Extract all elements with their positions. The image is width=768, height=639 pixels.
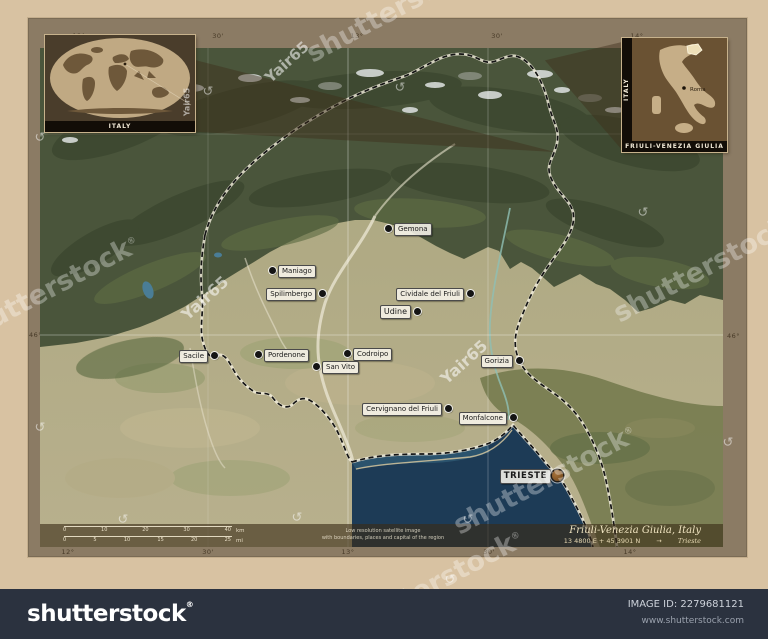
- place-dot-icon: [211, 352, 218, 359]
- italy-locator-inset: Roma ITALY FRIULI-VENEZIA GIULIA: [622, 38, 727, 152]
- graticule-label-bottom-0: 12°: [61, 548, 74, 556]
- place-label: Cervignano del Friuli: [362, 403, 442, 416]
- info-strip: 010203040 km 0510152025 mi Low resolutio…: [40, 524, 723, 547]
- image-id: IMAGE ID: 2279681121: [628, 599, 744, 610]
- scale-tick: 30: [183, 528, 189, 533]
- world-locator-inset: ITALY: [45, 35, 195, 132]
- scale-tick: 20: [142, 528, 148, 533]
- arrow-icon: →: [656, 537, 661, 545]
- world-map-art: [45, 35, 195, 121]
- scale-tick: 10: [101, 528, 107, 533]
- place-dot-icon: [344, 350, 351, 357]
- place-dot-icon: [269, 267, 276, 274]
- map-title-block: Friuli-Venezia Giulia, Italy 13 4800 E +…: [564, 525, 701, 546]
- scale-km-unit: km: [236, 528, 245, 534]
- region-meta: 13 4800 E + 45 3901 N → Trieste: [564, 537, 701, 546]
- place-label: San Vito: [322, 361, 359, 374]
- graticule-label-right-0: 46°: [727, 332, 740, 340]
- italy-inset-caption: FRIULI-VENEZIA GIULIA: [622, 141, 727, 152]
- scale-tick: 20: [191, 538, 197, 543]
- website-url: www.shutterstock.com: [642, 616, 744, 626]
- scale-mi-unit: mi: [236, 538, 243, 544]
- graticule-label-top-1: 30': [212, 32, 224, 40]
- scale-mi-ruler: 0510152025: [64, 536, 232, 543]
- place-dot-icon: [385, 225, 392, 232]
- graticule-label-bottom-4: 14°: [623, 548, 636, 556]
- graticule-label-top-3: 30': [491, 32, 503, 40]
- place-dot-icon: [319, 290, 326, 297]
- place-label: Cividale del Friuli: [396, 288, 464, 301]
- place-dot-icon: [552, 470, 563, 481]
- capital-name: Trieste: [678, 537, 701, 545]
- region-coordinates: 13 4800 E + 45 3901 N: [564, 537, 640, 545]
- scale-tick: 0: [63, 528, 66, 533]
- place-dot-icon: [516, 357, 523, 364]
- place-label: Sacile: [179, 350, 208, 363]
- place-dot-icon: [414, 308, 421, 315]
- place-label: Pordenone: [264, 349, 309, 362]
- scale-tick: 0: [63, 538, 66, 543]
- place-dot-icon: [445, 405, 452, 412]
- place-label: TRIESTE: [500, 469, 551, 484]
- place-dot-icon: [255, 351, 262, 358]
- map-attribution: Low resolution satellite image with boun…: [278, 528, 488, 542]
- graticule-label-top-2: 13°: [350, 32, 363, 40]
- scale-km-ruler: 010203040: [64, 526, 232, 533]
- place-dot-icon: [313, 363, 320, 370]
- graticule-label-bottom-3: 30': [483, 548, 495, 556]
- watermark-swirl-icon-8: ↺: [445, 573, 456, 588]
- registered-mark: ®: [186, 600, 194, 609]
- place-label: Gemona: [394, 223, 432, 236]
- place-label: Monfalcone: [459, 412, 507, 425]
- place-dot-icon: [510, 414, 517, 421]
- scale-tick: 5: [93, 538, 96, 543]
- graticule-label-bottom-2: 13°: [341, 548, 354, 556]
- scale-tick: 40: [225, 528, 231, 533]
- attribution-line-2: with boundaries, places and capital of t…: [278, 535, 488, 542]
- place-dot-icon: [467, 290, 474, 297]
- region-title: Friuli-Venezia Giulia, Italy: [564, 525, 701, 537]
- attribution-line-1: Low resolution satellite image: [278, 528, 488, 535]
- stock-image-page: 12°30'13°30'14°12°30'13°30'14°46°46°: [0, 0, 768, 639]
- roma-label: Roma: [690, 87, 706, 93]
- scale-tick: 10: [124, 538, 130, 543]
- italy-map-art: Roma: [622, 38, 727, 141]
- place-label: Spilimbergo: [266, 288, 316, 301]
- place-label: Gorizia: [481, 355, 513, 368]
- footer-bar: shutterstock® IMAGE ID: 2279681121 www.s…: [0, 589, 768, 639]
- world-inset-caption: ITALY: [45, 121, 195, 132]
- place-label: Maniago: [278, 265, 316, 278]
- shutterstock-logo: shutterstock®: [27, 600, 193, 627]
- scale-tick: 25: [225, 538, 231, 543]
- italy-inset-side-caption: ITALY: [622, 38, 632, 141]
- place-label: Codroipo: [353, 348, 392, 361]
- place-label: Udine: [380, 305, 411, 319]
- scale-tick: 15: [157, 538, 163, 543]
- graticule-label-bottom-1: 30': [202, 548, 214, 556]
- scale-bar: 010203040 km 0510152025 mi: [64, 526, 232, 543]
